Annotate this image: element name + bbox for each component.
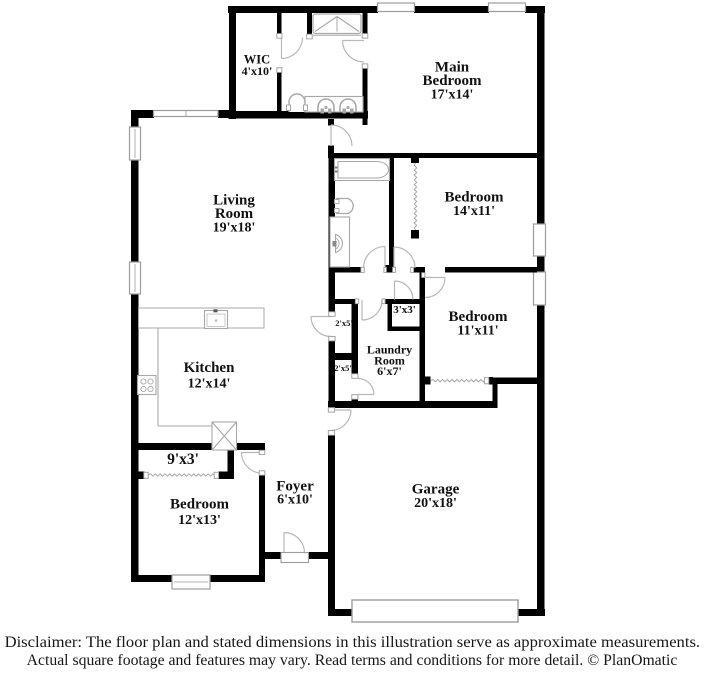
svg-text:19'x18': 19'x18' [213, 221, 256, 236]
svg-text:12'x14': 12'x14' [188, 377, 231, 392]
svg-text:17'x14': 17'x14' [431, 88, 474, 103]
svg-text:6'x10': 6'x10' [277, 493, 313, 508]
svg-text:4'x10': 4'x10' [242, 64, 273, 78]
svg-text:Bedroom: Bedroom [170, 497, 229, 513]
svg-text:2'x5': 2'x5' [334, 363, 351, 373]
svg-text:20'x18': 20'x18' [414, 496, 457, 511]
svg-text:14'x11': 14'x11' [453, 204, 495, 219]
svg-text:3'x3': 3'x3' [393, 304, 416, 316]
svg-text:12'x13': 12'x13' [178, 513, 221, 528]
svg-text:Kitchen: Kitchen [184, 360, 235, 376]
svg-text:6'x7': 6'x7' [377, 364, 402, 378]
svg-text:2'x5': 2'x5' [335, 318, 352, 328]
svg-text:9'x3': 9'x3' [167, 451, 199, 468]
svg-text:11'x11': 11'x11' [457, 324, 498, 339]
